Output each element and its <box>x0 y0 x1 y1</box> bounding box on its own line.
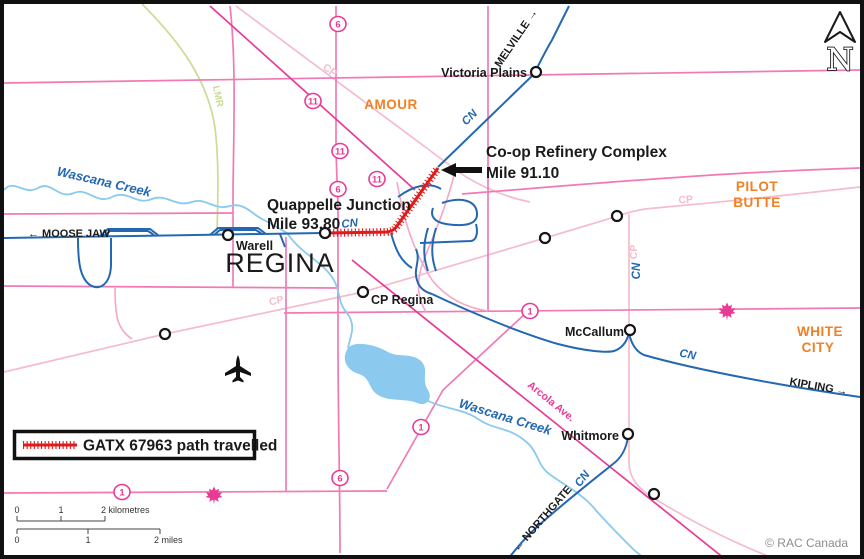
north-letter: N <box>826 42 853 78</box>
svg-text:1: 1 <box>119 488 125 499</box>
svg-text:1: 1 <box>527 307 533 318</box>
shield-hwy11: 11 <box>305 94 321 109</box>
label-junction-mile: Mile 93.80 <box>267 216 340 233</box>
shield-hwy1: 1 <box>413 420 429 435</box>
svg-text:11: 11 <box>372 175 383 186</box>
marker-unlabeled-4 <box>649 489 659 499</box>
marker-unlabeled-3 <box>160 329 170 339</box>
label-cn: CN <box>341 217 359 231</box>
label-pilot: PILOT <box>736 179 779 194</box>
shield-hwy6: 6 <box>330 17 346 32</box>
label-cp: CP <box>628 245 640 260</box>
shield-hwy1: 1 <box>114 485 130 500</box>
label-cn: CN <box>631 262 643 279</box>
svg-text:6: 6 <box>335 20 340 31</box>
map-canvas: 6 11 11 6 11 1 1 6 1 AMOUR PILOT BUTTE W… <box>0 0 864 559</box>
label-refinery-mile: Mile 91.10 <box>486 165 559 182</box>
shield-hwy6: 6 <box>332 471 348 486</box>
legend: GATX 67963 path travelled <box>15 432 278 459</box>
shield-hwy11: 11 <box>332 144 348 159</box>
marker-warell <box>223 230 233 240</box>
scale-mi-2: 2 miles <box>154 535 183 545</box>
label-refinery-name: Co-op Refinery Complex <box>486 144 667 161</box>
svg-text:11: 11 <box>308 97 319 108</box>
railway-occurrence-map: 6 11 11 6 11 1 1 6 1 AMOUR PILOT BUTTE W… <box>0 0 864 559</box>
marker-mccallum <box>625 325 635 335</box>
svg-text:11: 11 <box>335 147 346 158</box>
scale-mi-1: 1 <box>85 535 90 545</box>
label-butte: BUTTE <box>733 195 781 210</box>
label-cp-regina: CP Regina <box>371 293 434 307</box>
label-victoria-plains: Victoria Plains <box>441 66 527 80</box>
marker-cp-regina <box>358 287 368 297</box>
marker-whitmore <box>623 429 633 439</box>
label-white: WHITE <box>797 324 843 339</box>
credit-text: © RAC Canada <box>765 536 848 550</box>
svg-text:6: 6 <box>335 185 340 196</box>
scale-km-2: 2 kilometres <box>101 505 150 515</box>
label-cp: CP <box>678 194 693 207</box>
label-amour: AMOUR <box>364 97 418 112</box>
legend-label: GATX 67963 path travelled <box>83 438 277 455</box>
scale-km-1: 1 <box>58 505 63 515</box>
marker-unlabeled-1 <box>540 233 550 243</box>
label-warell: Warell <box>236 239 273 253</box>
scale-mi-0: 0 <box>14 535 19 545</box>
label-whitmore: Whitmore <box>561 429 619 443</box>
label-white-city: CITY <box>802 340 835 355</box>
shield-hwy6: 6 <box>330 182 346 197</box>
label-moose-jaw: ← MOOSE JAW <box>28 228 111 240</box>
label-junction-name: Quappelle Junction <box>267 197 411 214</box>
shield-hwy11: 11 <box>369 172 385 187</box>
marker-victoria-plains <box>531 67 541 77</box>
label-mccallum: McCallum <box>565 325 624 339</box>
scale-km-0: 0 <box>14 505 19 515</box>
marker-unlabeled-2 <box>612 211 622 221</box>
svg-text:6: 6 <box>337 474 342 485</box>
shield-hwy1: 1 <box>522 304 538 319</box>
svg-text:1: 1 <box>418 423 424 434</box>
